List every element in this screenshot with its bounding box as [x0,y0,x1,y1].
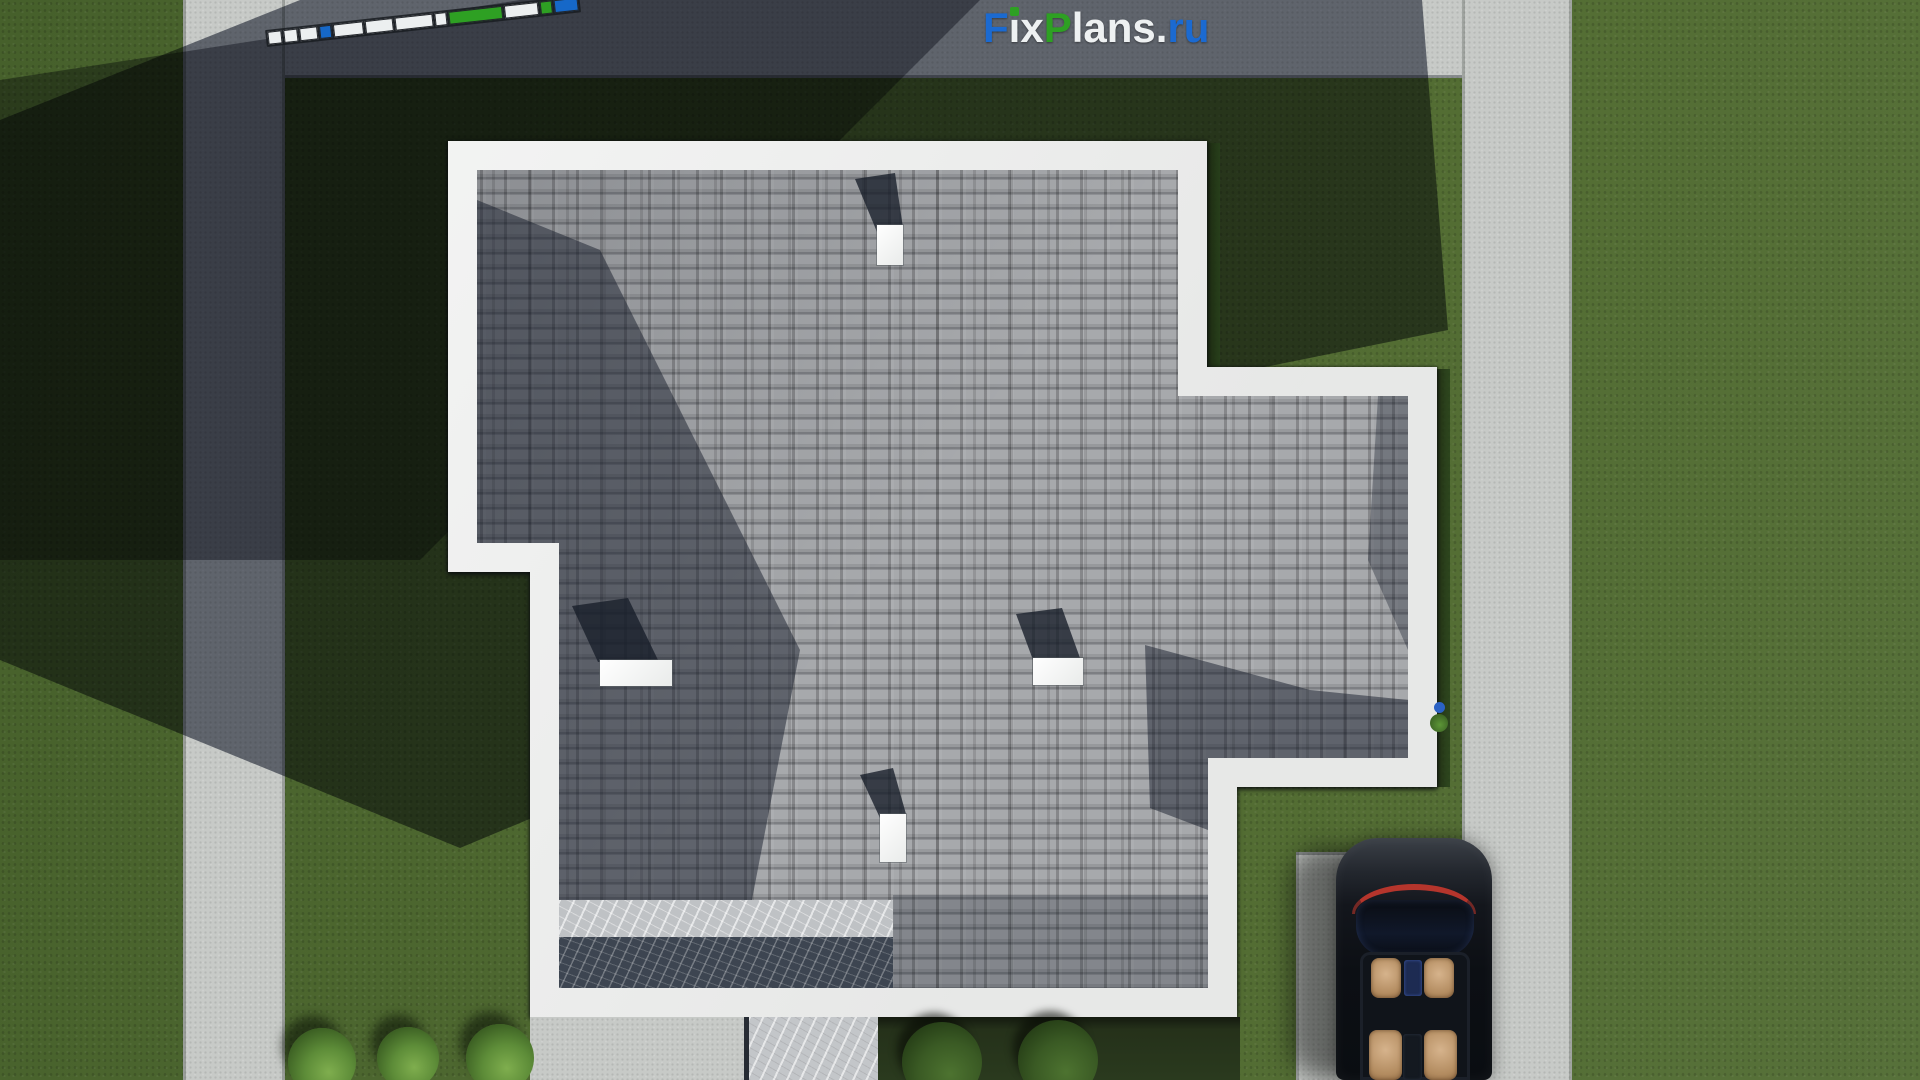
scale-bar-segment [319,25,332,39]
car-center-console [1404,960,1422,996]
car-windshield [1356,900,1474,956]
scale-bar-segment [554,0,579,13]
chimney [877,225,903,265]
logo-letter: ru [1167,4,1209,52]
logo-i-dot-icon [1010,7,1019,16]
scale-bar-segment [504,2,539,19]
chimney [880,814,906,862]
site-plan-render: FıxPlans.ru [0,0,1920,1080]
chimney-shadow [560,596,672,666]
chimney [1033,658,1083,685]
site-logo: FıxPlans.ru [983,4,1209,52]
small-plant [1428,700,1450,740]
chimney-shadow [845,760,911,820]
scale-bar-segment [365,18,394,34]
marble-walkway [744,1017,878,1080]
plant-bloom [1434,702,1445,713]
plant-leaf [1430,714,1448,732]
logo-letter: lans [1072,4,1156,52]
logo-letter: P [1044,4,1072,52]
car-seat-rear-right [1424,1030,1457,1080]
shaded-lawn-below-house [878,1017,1240,1080]
scale-bar-segment [299,26,318,41]
scale-bar-segment [395,14,434,31]
scale-bar-segment [283,29,298,43]
logo-letter: ı [1009,4,1021,52]
car-seat-rear-left [1369,1030,1402,1080]
logo-letter: . [1156,4,1168,52]
car-seat-front-right [1424,958,1454,998]
chimney [600,660,672,686]
scale-bar-segment [540,0,553,14]
scale-bar-segment [434,12,447,26]
scale-bar-segment [267,30,282,44]
chimney-shadow [1000,604,1096,664]
scale-bar-segment [333,21,364,37]
logo-letter: F [983,4,1009,52]
concrete-apron [530,1017,744,1080]
logo-letter: x [1020,4,1043,52]
car-rear-console [1403,1034,1422,1080]
car-seat-front-left [1371,958,1401,998]
house [0,0,1920,1080]
